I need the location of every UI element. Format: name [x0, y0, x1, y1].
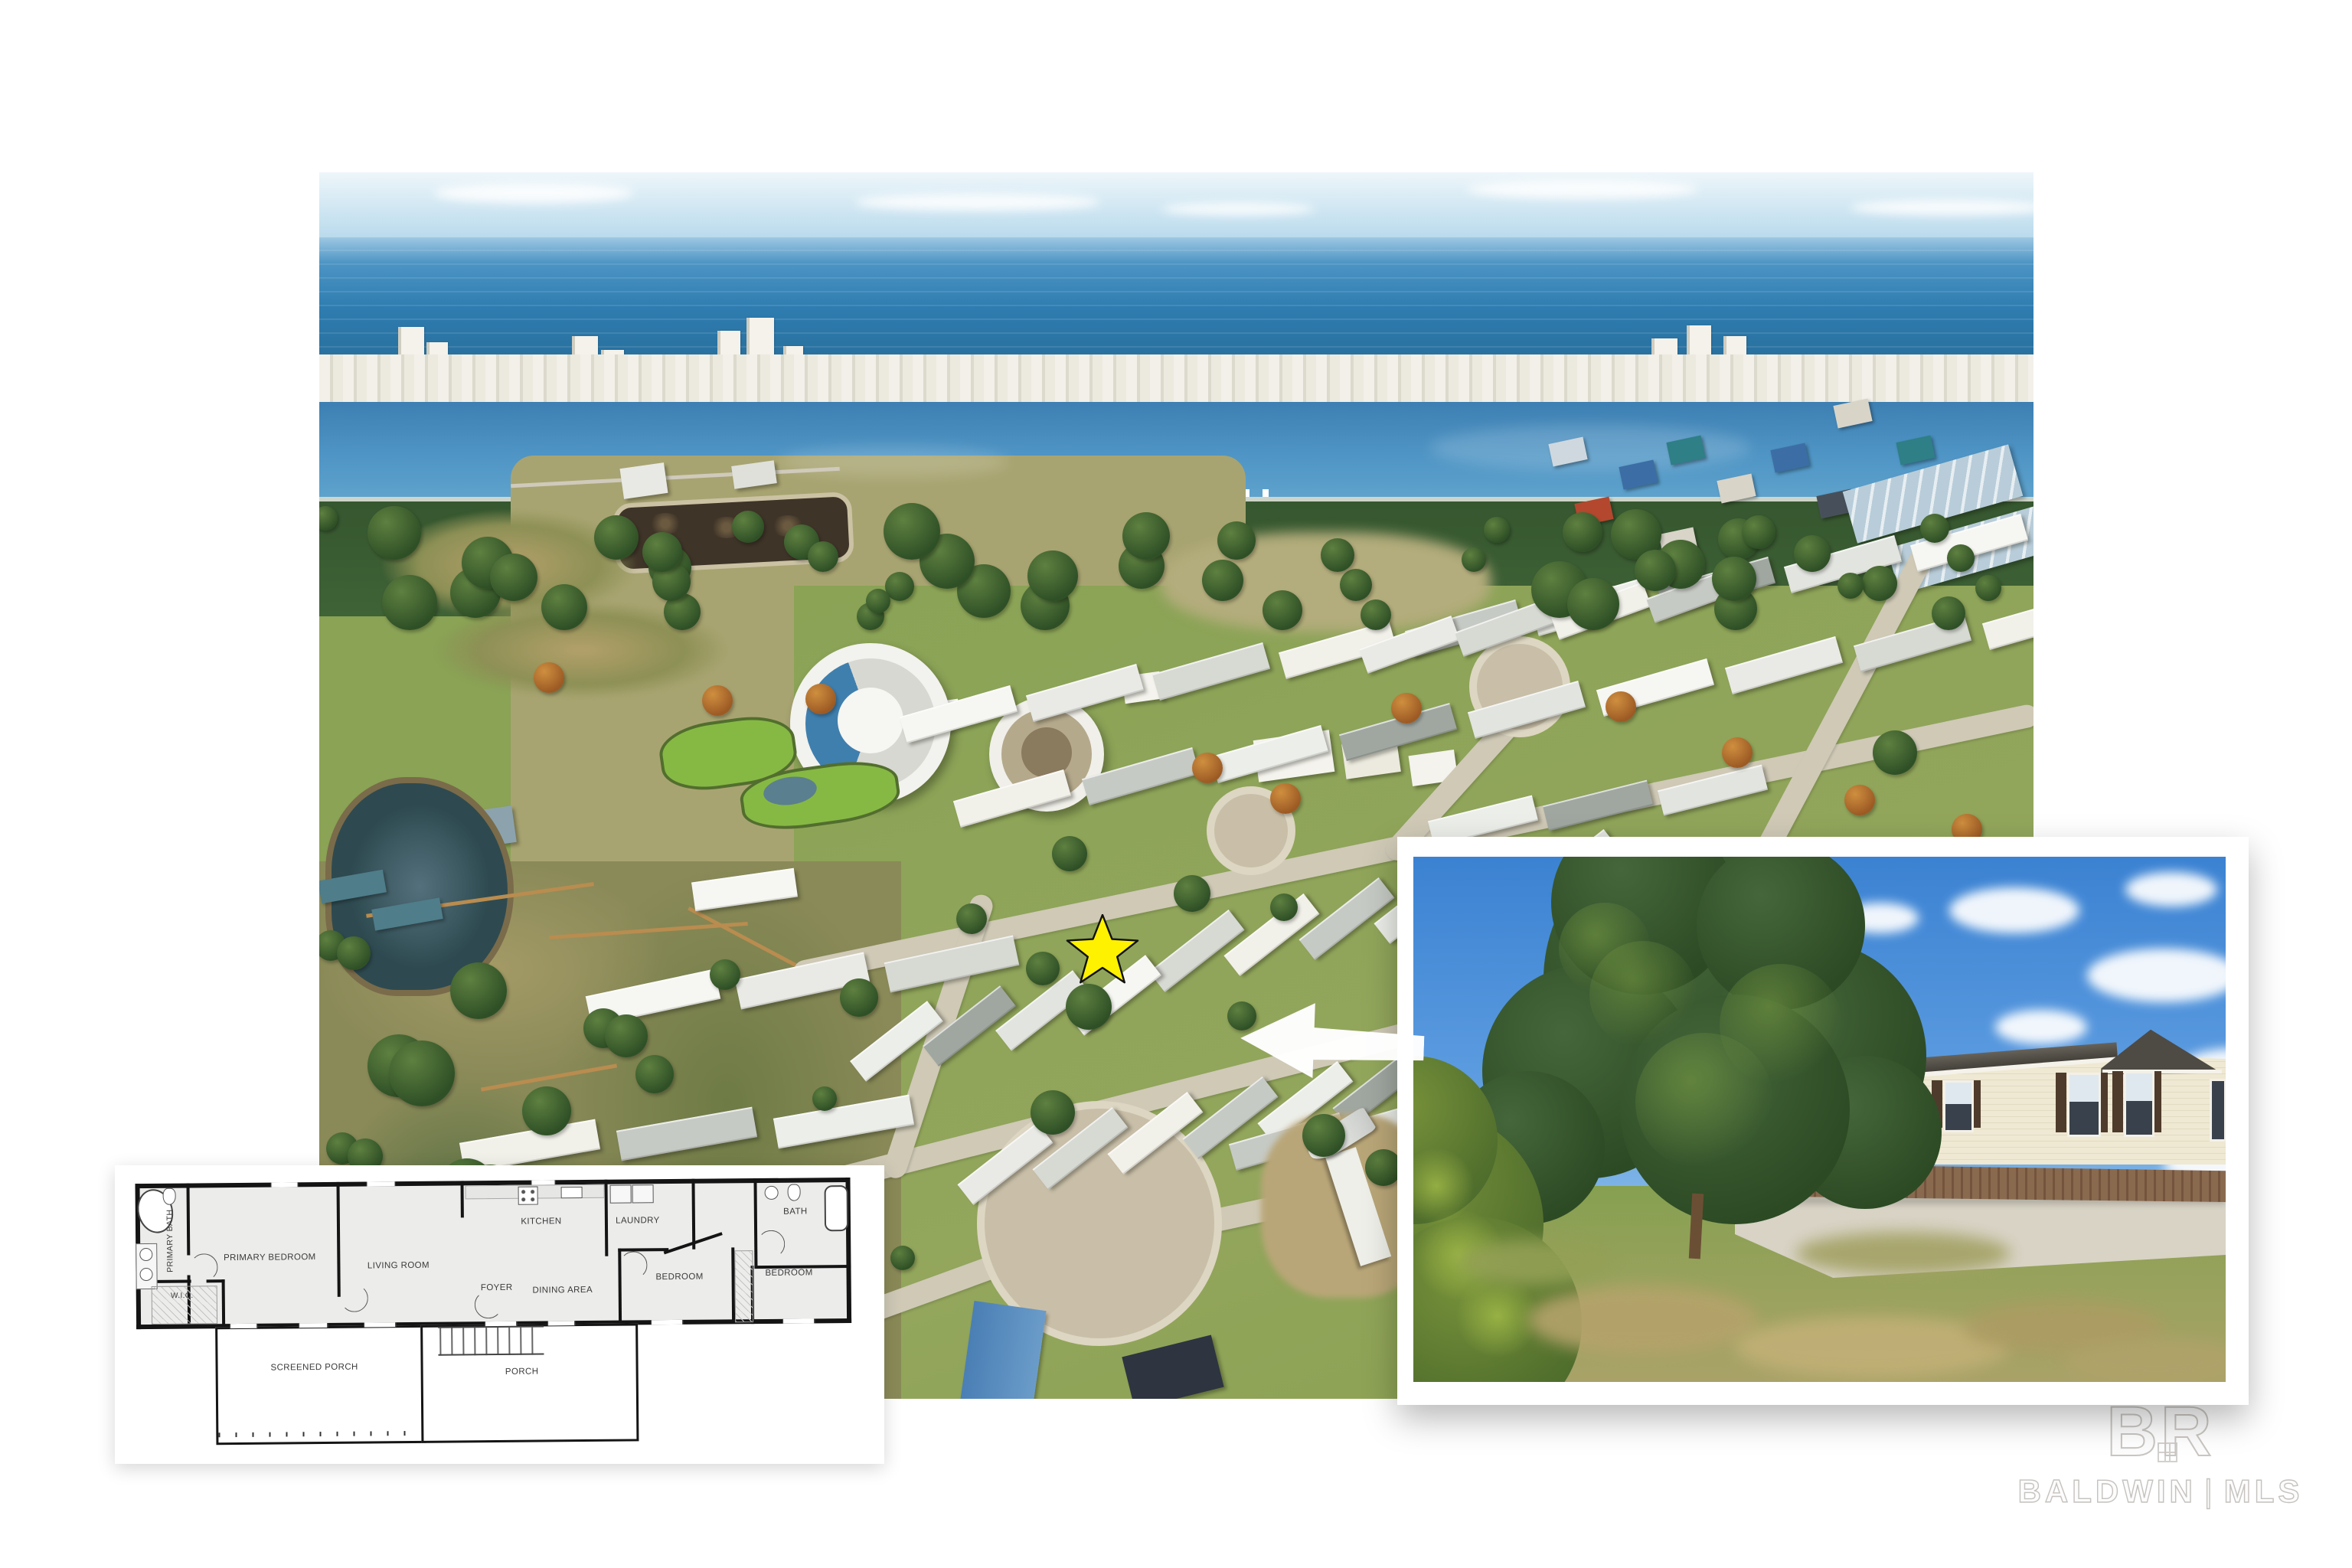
cloud	[855, 194, 1100, 211]
wall	[604, 1180, 608, 1256]
baldwin-mls-watermark: BR BALDWIN | MLS	[2007, 1395, 2314, 1510]
floor-plan-drawing: PRIMARY BATH W.I.C. PRIMARY BEDROOM LIVI…	[113, 1162, 885, 1468]
tank-center	[838, 688, 903, 753]
tree	[642, 532, 682, 572]
house-photo-inset	[1397, 837, 2249, 1405]
tree	[1026, 952, 1060, 985]
tree	[1484, 517, 1510, 543]
stair-line	[451, 1328, 452, 1356]
washer	[610, 1184, 632, 1203]
foliage-highlight	[1635, 1033, 1773, 1171]
window-gap	[364, 1322, 396, 1327]
tree	[1321, 538, 1354, 572]
wall	[691, 1179, 695, 1249]
logo-house-window-icon	[2158, 1442, 2177, 1462]
window-gap	[651, 1320, 683, 1325]
window	[2067, 1073, 2101, 1137]
room-label-primary-bedroom: PRIMARY BEDROOM	[224, 1253, 316, 1263]
shutter	[2112, 1071, 2123, 1132]
tree	[1217, 521, 1256, 560]
window-gap	[485, 1321, 517, 1326]
dry-grass-patch	[1796, 1232, 2011, 1275]
tree	[1920, 514, 1949, 543]
room-label-primary-bath: PRIMARY BATH	[165, 1209, 175, 1272]
tree	[710, 959, 740, 990]
tree	[840, 978, 878, 1017]
stair-line	[462, 1328, 464, 1355]
tree	[594, 515, 639, 560]
cloud	[1161, 203, 1315, 215]
tank-core	[1021, 727, 1072, 778]
autumn-tree	[805, 684, 836, 714]
mobile-home	[960, 1301, 1046, 1399]
tree	[884, 503, 940, 560]
autumn-tree	[1844, 785, 1875, 815]
barrier-island-strip	[319, 354, 2033, 403]
stair-line	[531, 1328, 533, 1355]
plant-building	[619, 462, 668, 499]
stove	[518, 1187, 538, 1205]
tree	[1947, 544, 1975, 572]
toilet	[163, 1188, 176, 1205]
wall	[618, 1248, 668, 1252]
tree	[1066, 984, 1112, 1030]
tree	[1202, 560, 1243, 601]
tree	[1340, 569, 1372, 601]
tree	[1462, 547, 1486, 572]
tree	[890, 1246, 915, 1270]
corner-window	[2210, 1079, 2226, 1142]
wordmark-suffix: MLS	[2224, 1473, 2304, 1510]
window-gap	[547, 1321, 575, 1325]
tree	[1174, 875, 1210, 912]
kitchen-sink	[561, 1187, 583, 1198]
wordmark-divider: |	[2204, 1473, 2216, 1510]
room-label-kitchen: KITCHEN	[521, 1217, 561, 1226]
shutter	[2056, 1073, 2066, 1132]
stair-line	[520, 1328, 521, 1355]
tree	[1932, 596, 1965, 630]
autumn-tree	[1391, 693, 1422, 724]
stair-line	[439, 1328, 441, 1356]
closet-hatch	[734, 1250, 753, 1322]
tree	[1031, 1090, 1075, 1135]
floor-plan-inset: PRIMARY BATH W.I.C. PRIMARY BEDROOM LIVI…	[115, 1165, 884, 1464]
tree	[1873, 730, 1917, 775]
tree	[490, 554, 537, 601]
tree	[866, 589, 890, 613]
tree	[1975, 575, 2001, 601]
window-gap	[270, 1182, 298, 1187]
porch-outline	[420, 1323, 639, 1442]
autumn-tree	[1606, 691, 1636, 722]
tree	[812, 1086, 837, 1111]
cloud	[2125, 872, 2217, 906]
cloud	[1949, 887, 2079, 933]
sink	[139, 1268, 152, 1281]
tree	[1563, 512, 1602, 552]
star-shape	[1067, 915, 1138, 982]
tree	[1302, 1114, 1345, 1157]
tree	[1635, 550, 1676, 591]
room-label-foyer: FOYER	[481, 1283, 513, 1292]
tree	[1862, 566, 1897, 601]
tree	[956, 903, 987, 934]
wall	[222, 1279, 226, 1327]
room-label-porch: PORCH	[505, 1367, 539, 1377]
star-marker-icon	[1066, 914, 1139, 986]
tree	[1794, 535, 1831, 572]
tree	[382, 575, 437, 630]
foliage-highlight	[1559, 903, 1651, 995]
dry-grass-patch	[1459, 1240, 1612, 1285]
sink	[139, 1248, 152, 1261]
cloud	[1995, 1010, 2087, 1044]
window-gap	[782, 1318, 815, 1323]
tree	[1712, 557, 1756, 601]
cloud	[434, 183, 633, 203]
tree	[1122, 512, 1170, 560]
autumn-tree	[1270, 783, 1301, 814]
callout-arrow-icon	[1239, 996, 1426, 1090]
tree	[1052, 836, 1087, 871]
room-label-dining-area: DINING AREA	[532, 1285, 593, 1295]
tree	[541, 584, 587, 630]
tree	[732, 511, 764, 543]
tree	[389, 1040, 455, 1106]
window	[1943, 1080, 1974, 1132]
room-label-living-room: LIVING ROOM	[367, 1261, 430, 1271]
stair-line	[497, 1328, 498, 1355]
room-label-bath: BATH	[783, 1207, 808, 1216]
cloud	[2087, 949, 2226, 1002]
autumn-tree	[1722, 737, 1753, 768]
room-label-bedroom-2: BEDROOM	[655, 1272, 703, 1282]
tree	[367, 506, 421, 560]
bush-highlight	[1455, 1274, 1540, 1358]
sink	[765, 1186, 779, 1200]
room-label-screened-porch: SCREENED PORCH	[270, 1363, 358, 1373]
listing-collage: PRIMARY BATH W.I.C. PRIMARY BEDROOM LIVI…	[0, 0, 2352, 1568]
stair-line	[508, 1328, 510, 1355]
tree	[337, 936, 371, 970]
tree	[1365, 1149, 1402, 1186]
water-reflection	[779, 446, 1008, 477]
dryer	[632, 1184, 654, 1203]
dry-grass-patch	[1528, 1285, 1758, 1354]
room-label-wic: W.I.C.	[171, 1292, 194, 1300]
cloud	[1468, 180, 1697, 198]
tree	[635, 1055, 674, 1093]
tree	[808, 541, 838, 572]
baldwin-mls-wordmark: BALDWIN | MLS	[2007, 1473, 2314, 1510]
window-gap	[299, 1323, 328, 1328]
tree	[450, 962, 507, 1019]
wall	[460, 1181, 463, 1217]
tree	[1263, 590, 1302, 630]
autumn-tree	[1192, 753, 1223, 783]
brush-mound	[434, 601, 802, 724]
house-photo	[1413, 857, 2226, 1382]
tree	[1027, 550, 1078, 601]
autumn-tree	[534, 662, 564, 693]
stair-line	[485, 1328, 487, 1355]
screened-porch-outline	[215, 1325, 426, 1445]
arrow-shape	[1239, 1001, 1425, 1082]
tree	[605, 1014, 648, 1057]
tree	[1361, 599, 1391, 630]
stair-line	[474, 1328, 475, 1355]
tree	[522, 1086, 571, 1135]
window-gap	[366, 1181, 395, 1186]
window	[2124, 1071, 2154, 1137]
wordmark-brand: BALDWIN	[2018, 1473, 2197, 1510]
wall	[186, 1184, 190, 1256]
tree	[1567, 578, 1619, 630]
tree	[1837, 573, 1864, 599]
tree	[1270, 893, 1298, 921]
room-label-laundry: LAUNDRY	[616, 1216, 660, 1226]
toilet	[788, 1184, 801, 1201]
bathtub	[825, 1185, 849, 1231]
tree	[1742, 515, 1775, 549]
window-gap	[230, 1324, 257, 1328]
room-label-bedroom-3: BEDROOM	[765, 1268, 812, 1278]
autumn-tree	[702, 685, 733, 716]
wall	[618, 1249, 622, 1325]
